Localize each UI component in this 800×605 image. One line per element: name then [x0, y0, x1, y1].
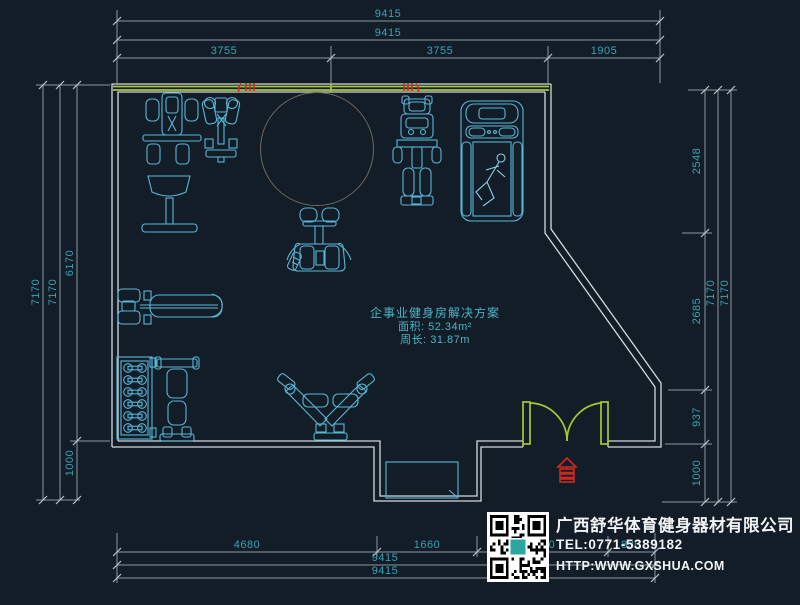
- dim-top-total-2: 9415: [375, 27, 401, 39]
- adjustable-bench-icon: [155, 357, 199, 441]
- plan-annotation: 企事业健身房解决方案 面积: 52.34m² 周长: 31.87m: [370, 304, 500, 346]
- multi-station-gym-icon: [393, 96, 441, 205]
- dim-top-seg-1: 3755: [211, 45, 237, 57]
- squat-machine-icon: [287, 208, 351, 271]
- elliptical-trainer-icon: [202, 98, 241, 163]
- free-area-circle: [261, 93, 374, 206]
- dim-left-total-1: 7170: [30, 279, 42, 305]
- dim-top-seg-3: 1905: [591, 45, 617, 57]
- entry-platform-icon: [386, 462, 458, 498]
- pec-deck-machine-icon: [276, 373, 375, 440]
- dim-right-total-1: 7170: [705, 280, 717, 306]
- dim-right-seg-4: 1000: [691, 460, 703, 486]
- dim-top-total-1: 9415: [375, 8, 401, 20]
- company-phone: TEL:0771-5389182: [556, 537, 683, 552]
- plan-perimeter: 周长: 31.87m: [370, 334, 500, 347]
- treadmill-icon: [461, 101, 523, 221]
- dim-bottom-seg-2: 1660: [414, 539, 440, 551]
- dim-bottom-total-1: 9415: [372, 552, 398, 564]
- dim-left-seg-1: 6170: [64, 250, 76, 276]
- dim-right-seg-3: 937: [691, 407, 703, 427]
- dim-top-seg-2: 3755: [427, 45, 453, 57]
- company-website: HTTP:WWW.GXSHUA.COM: [556, 559, 725, 573]
- dim-right-seg-2: 2685: [691, 298, 703, 324]
- dimension-ticks: [39, 17, 735, 582]
- dim-right-seg-1: 2548: [691, 148, 703, 174]
- entrance-marker-icon: [558, 458, 576, 482]
- dim-right-total-2: 7170: [719, 280, 731, 306]
- dumbbell-rack-icon: [117, 357, 156, 439]
- bench-press-icon: [118, 289, 222, 324]
- qr-code: [487, 512, 549, 582]
- runner-figure-icon: [476, 154, 505, 206]
- company-name: 广西舒华体育健身器材有限公司: [556, 512, 794, 536]
- plan-title: 企事业健身房解决方案: [370, 304, 500, 321]
- window-wall: [113, 84, 549, 92]
- dim-bottom-seg-1: 4680: [234, 539, 260, 551]
- double-door-icon: [523, 402, 608, 444]
- dim-bottom-total-2: 9415: [372, 565, 398, 577]
- dim-left-seg-2: 1000: [64, 450, 76, 476]
- exercise-bike-icon: [142, 93, 201, 232]
- plan-area: 面积: 52.34m²: [370, 321, 500, 334]
- qr-code-image: [490, 515, 546, 579]
- dim-left-total-2: 7170: [47, 279, 59, 305]
- cad-drawing-canvas: 9415 9415 3755 3755 1905 4680 1660 1500 …: [0, 0, 800, 605]
